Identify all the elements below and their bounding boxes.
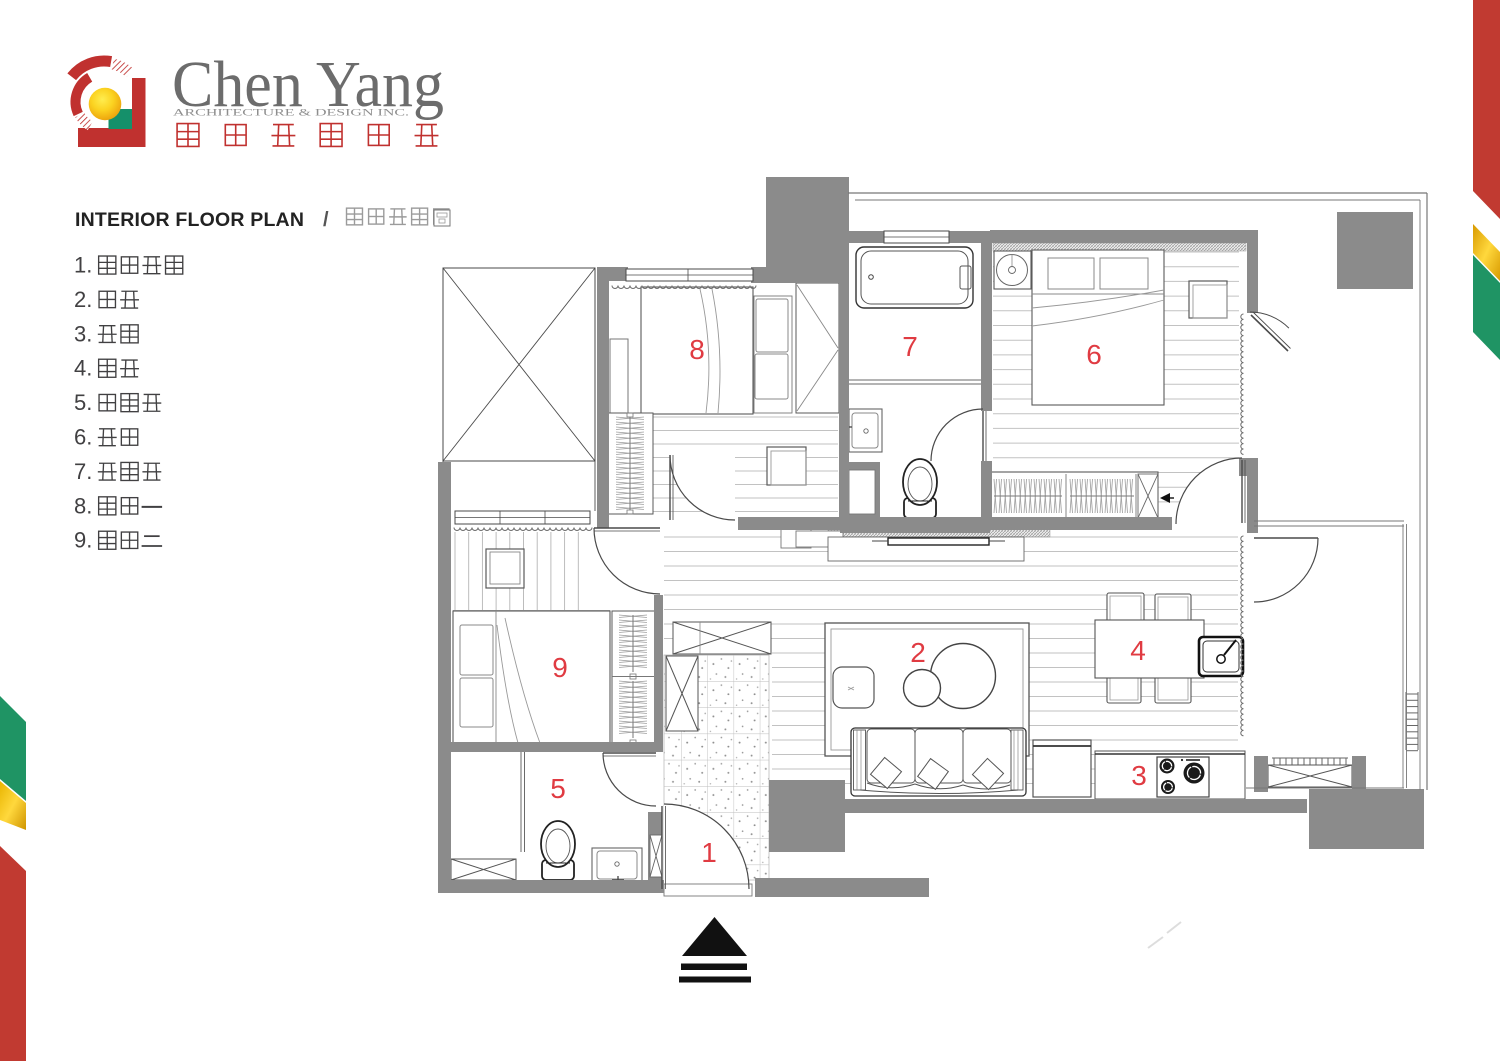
svg-text:3: 3 (1131, 760, 1147, 791)
svg-text:1.: 1. (74, 253, 92, 278)
svg-text:9: 9 (552, 652, 568, 683)
svg-text:8: 8 (689, 334, 705, 365)
svg-text:6.: 6. (74, 425, 92, 450)
svg-text:7.: 7. (74, 459, 92, 484)
svg-text:8.: 8. (74, 493, 92, 518)
svg-text:2.: 2. (74, 287, 92, 312)
svg-text:4.: 4. (74, 356, 92, 381)
svg-text:2: 2 (910, 637, 926, 668)
svg-text:5.: 5. (74, 390, 92, 415)
svg-text:/: / (323, 209, 329, 231)
svg-text:3.: 3. (74, 321, 92, 346)
svg-text:6: 6 (1086, 339, 1102, 370)
svg-text:4: 4 (1130, 635, 1146, 666)
svg-text:ARCHITECTURE & DESIGN INC.: ARCHITECTURE & DESIGN INC. (173, 109, 409, 119)
svg-text:7: 7 (902, 331, 918, 362)
svg-text:5: 5 (550, 773, 566, 804)
svg-text:9.: 9. (74, 528, 92, 553)
svg-text:1: 1 (701, 837, 717, 868)
svg-text:INTERIOR FLOOR PLAN: INTERIOR FLOOR PLAN (75, 209, 304, 231)
